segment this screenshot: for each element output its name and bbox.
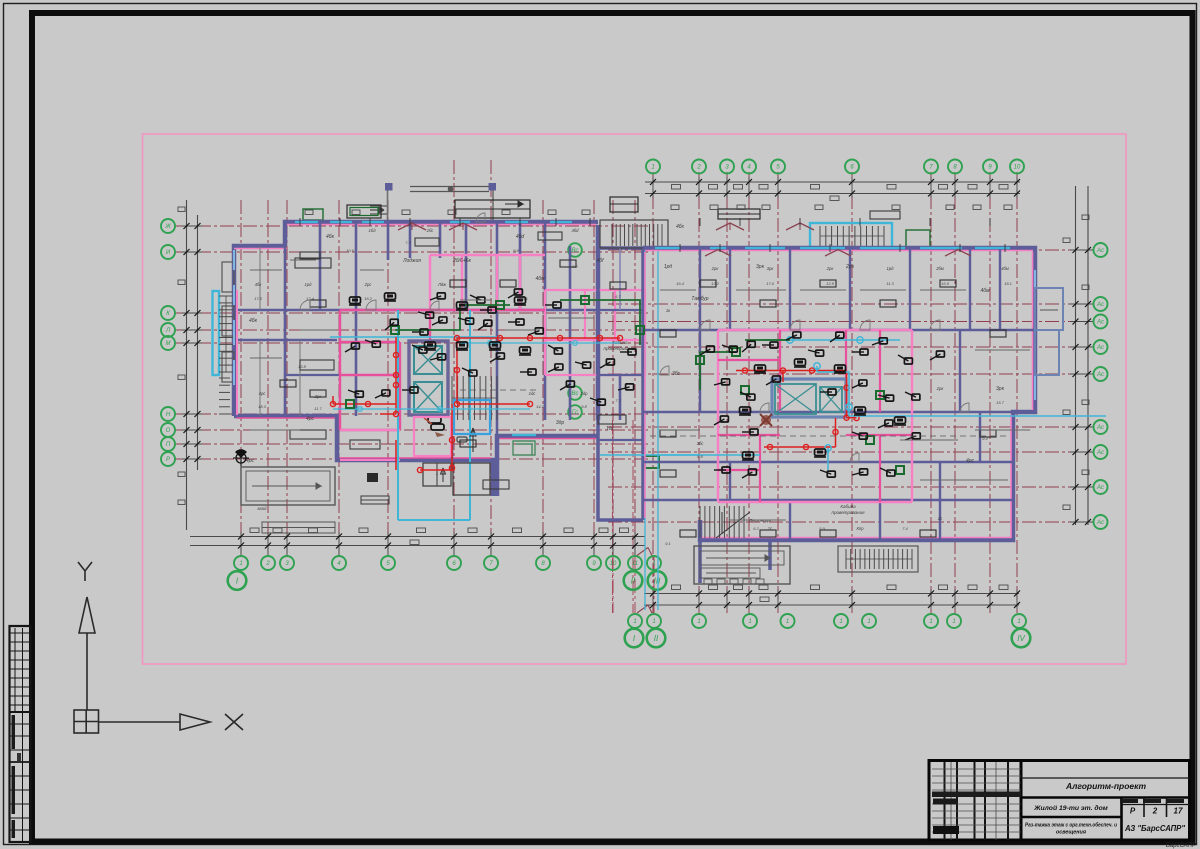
svg-text:14.2: 14.2 [536, 404, 545, 409]
svg-text:1: 1 [748, 619, 751, 625]
svg-text:11.7: 11.7 [314, 406, 322, 411]
svg-text:10: 10 [610, 561, 617, 567]
svg-text:1: 1 [239, 561, 242, 567]
svg-text:проветривания: проветривания [831, 510, 865, 515]
svg-text:2бм: 2бм [935, 266, 944, 271]
svg-text:17.8: 17.8 [254, 296, 263, 301]
svg-text:17: 17 [1174, 807, 1183, 816]
svg-text:3рк: 3рк [767, 266, 775, 271]
svg-text:1: 1 [652, 619, 655, 625]
svg-text:1: 1 [633, 619, 636, 625]
svg-text:5.9: 5.9 [819, 526, 825, 531]
svg-text:1: 1 [929, 619, 932, 625]
svg-text:Жилой 19-ти эт. дом: Жилой 19-ти эт. дом [1033, 804, 1108, 812]
svg-text:4бк: 4бк [255, 282, 263, 287]
svg-text:4бм: 4бм [1001, 266, 1009, 271]
svg-text:18.1: 18.1 [1004, 281, 1012, 286]
svg-text:1: 1 [1017, 619, 1020, 625]
svg-text:13.8: 13.8 [298, 364, 307, 369]
svg-text:1: 1 [697, 619, 700, 625]
svg-text:4рс: 4рс [246, 458, 255, 464]
svg-text:6.2: 6.2 [753, 526, 759, 531]
svg-text:4бм: 4бм [535, 276, 545, 282]
svg-text:9.1: 9.1 [665, 541, 671, 546]
svg-text:О: О [166, 428, 171, 434]
svg-text:К: К [166, 311, 170, 317]
svg-text:3бс: 3бс [672, 371, 681, 377]
svg-text:4бк: 4бк [249, 318, 258, 324]
svg-text:1дс: 1дс [606, 426, 615, 432]
svg-text:9.8: 9.8 [581, 404, 587, 409]
svg-text:16.4: 16.4 [676, 281, 685, 286]
svg-text:2рс: 2рс [364, 282, 373, 287]
svg-text:9.6: 9.6 [439, 296, 445, 301]
svg-text:4бd: 4бd [516, 234, 525, 240]
svg-text:18.3: 18.3 [258, 404, 267, 409]
svg-text:2: 2 [1152, 807, 1158, 816]
svg-text:11.3: 11.3 [886, 281, 894, 286]
svg-text:2рк: 2рк [936, 386, 945, 391]
svg-text:Ас: Ас [1096, 450, 1104, 456]
svg-text:3др: 3др [556, 420, 565, 426]
svg-text:Раз-тажка этаж с орг.техн.обес: Раз-тажка этаж с орг.техн.обеспеч. и [1025, 822, 1118, 829]
svg-text:2рк: 2рк [826, 266, 835, 271]
svg-text:6.7: 6.7 [615, 294, 621, 299]
svg-text:2др: 2др [580, 391, 589, 396]
svg-text:4рс: 4рс [306, 416, 315, 422]
svg-text:И: И [166, 250, 171, 256]
svg-text:Ас: Ас [1096, 425, 1104, 431]
svg-text:II: II [654, 634, 659, 643]
svg-text:Кпр: Кпр [856, 526, 864, 531]
svg-text:1: 1 [651, 165, 654, 171]
svg-text:П: П [166, 442, 171, 448]
svg-text:4бк: 4бк [326, 234, 335, 240]
svg-text:вход: вход [258, 506, 268, 511]
svg-text:2рк: 2рк [845, 264, 855, 270]
svg-text:4бd: 4бd [571, 228, 579, 233]
svg-text:2бс: 2бс [426, 228, 435, 233]
svg-text:М: М [166, 341, 171, 347]
svg-text:Ас: Ас [1096, 520, 1104, 526]
svg-text:7.4: 7.4 [902, 526, 908, 531]
svg-text:2рк: 2рк [711, 266, 720, 271]
svg-text:1: 1 [839, 619, 842, 625]
svg-text:1рд: 1рд [664, 264, 673, 270]
svg-text:Н: Н [166, 412, 171, 418]
svg-text:4рс: 4рс [966, 458, 975, 464]
svg-text:Ас: Ас [1096, 485, 1104, 491]
svg-text:1: 1 [436, 471, 438, 476]
svg-text:Тамбур: Тамбур [691, 296, 708, 302]
svg-text:15.1: 15.1 [520, 296, 528, 301]
svg-text:12.8: 12.8 [826, 281, 835, 286]
svg-text:15.7: 15.7 [996, 400, 1005, 405]
svg-text:БарсСАПР: БарсСАПР [1166, 843, 1196, 849]
svg-text:4бм: 4бм [980, 288, 990, 294]
svg-text:2б/6+6к: 2б/6+6к [452, 258, 471, 264]
svg-text:Алгоритм-проект: Алгоритм-проект [1065, 781, 1147, 791]
svg-text:1рд: 1рд [887, 266, 895, 271]
svg-text:1рд: 1рд [305, 282, 313, 287]
svg-text:Лоджия: Лоджия [402, 258, 421, 264]
svg-text:4бf: 4бf [597, 258, 605, 264]
svg-text:Р: Р [1130, 807, 1136, 816]
svg-text:3бс: 3бс [697, 441, 705, 446]
svg-text:1: 1 [652, 561, 655, 567]
svg-text:2рк: 2рк [314, 394, 323, 399]
svg-text:3рк: 3рк [996, 386, 1005, 392]
svg-text:II: II [631, 576, 636, 585]
svg-text:4рс: 4рс [259, 391, 267, 396]
svg-text:1дс: 1дс [529, 391, 537, 396]
svg-text:9.9: 9.9 [513, 248, 519, 253]
svg-text:Лестница: Лестница [748, 518, 771, 523]
svg-text:освещения: освещения [1056, 830, 1087, 836]
svg-text:13.2: 13.2 [711, 281, 720, 286]
svg-text:2с: 2с [937, 516, 943, 521]
svg-text:Кабина: Кабина [840, 504, 856, 509]
svg-text:1: 1 [786, 619, 789, 625]
svg-text:2: 2 [265, 561, 270, 567]
svg-text:Ас: Ас [1096, 302, 1104, 308]
svg-text:Л: Л [165, 328, 171, 334]
svg-text:16.2: 16.2 [364, 296, 373, 301]
svg-text:4бх: 4бх [676, 224, 684, 230]
svg-text:IV: IV [1017, 634, 1025, 643]
svg-text:Гс: Гс [572, 410, 578, 416]
svg-text:11: 11 [632, 561, 638, 567]
svg-text:Ас: Ас [1096, 248, 1104, 254]
svg-text:17.6: 17.6 [766, 281, 775, 286]
svg-text:8.8: 8.8 [697, 454, 703, 459]
svg-text:7.7: 7.7 [615, 398, 621, 403]
svg-text:АЗ "БарсСАПР": АЗ "БарсСАПР" [1124, 824, 1185, 833]
svg-text:9.4: 9.4 [982, 436, 988, 441]
svg-text:10.6: 10.6 [346, 248, 355, 253]
svg-text:8.2: 8.2 [572, 264, 578, 269]
svg-text:3рк: 3рк [756, 264, 765, 270]
svg-text:1: 1 [867, 619, 870, 625]
svg-text:Ас: Ас [1096, 372, 1104, 378]
svg-text:1: 1 [952, 619, 955, 625]
svg-text:2: 2 [696, 165, 701, 171]
svg-text:Вс: Вс [571, 391, 578, 397]
svg-text:Вс: Вс [571, 248, 578, 254]
svg-text:16.9: 16.9 [941, 281, 950, 286]
svg-text:Ас: Ас [1096, 320, 1104, 326]
svg-text:7.3: 7.3 [405, 240, 411, 245]
svg-text:1бд: 1бд [368, 228, 376, 233]
svg-text:Ас: Ас [1096, 345, 1104, 351]
svg-text:Р: Р [166, 457, 170, 463]
svg-text:Ж: Ж [164, 224, 171, 230]
svg-text:10: 10 [1014, 165, 1021, 171]
svg-text:Лдж: Лдж [437, 282, 447, 287]
